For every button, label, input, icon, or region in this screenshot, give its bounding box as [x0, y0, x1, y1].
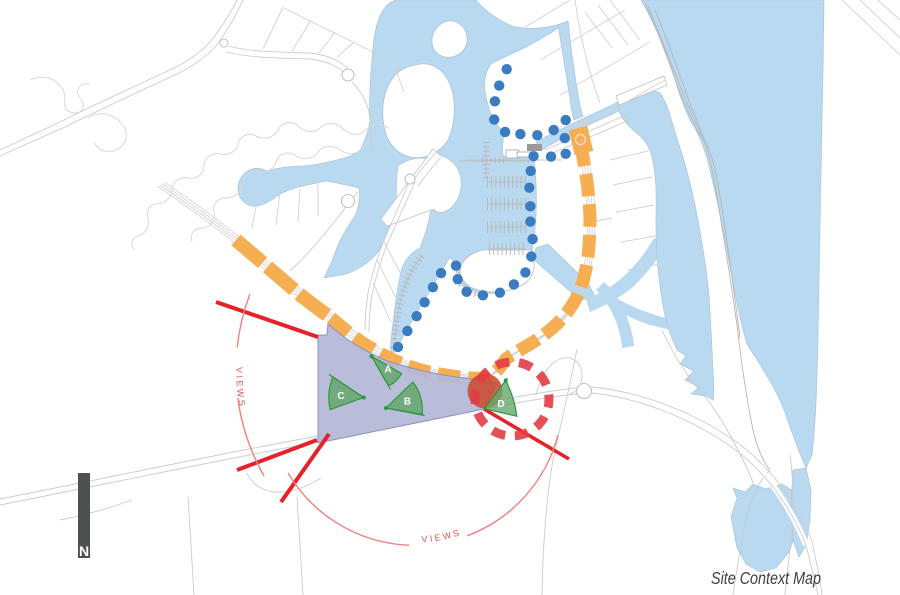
- svg-text:D: D: [497, 399, 504, 410]
- svg-text:B: B: [404, 397, 411, 408]
- svg-text:Site Context Map: Site Context Map: [711, 568, 821, 588]
- svg-text:N: N: [79, 543, 89, 559]
- svg-text:C: C: [337, 391, 344, 402]
- svg-text:A: A: [384, 365, 391, 376]
